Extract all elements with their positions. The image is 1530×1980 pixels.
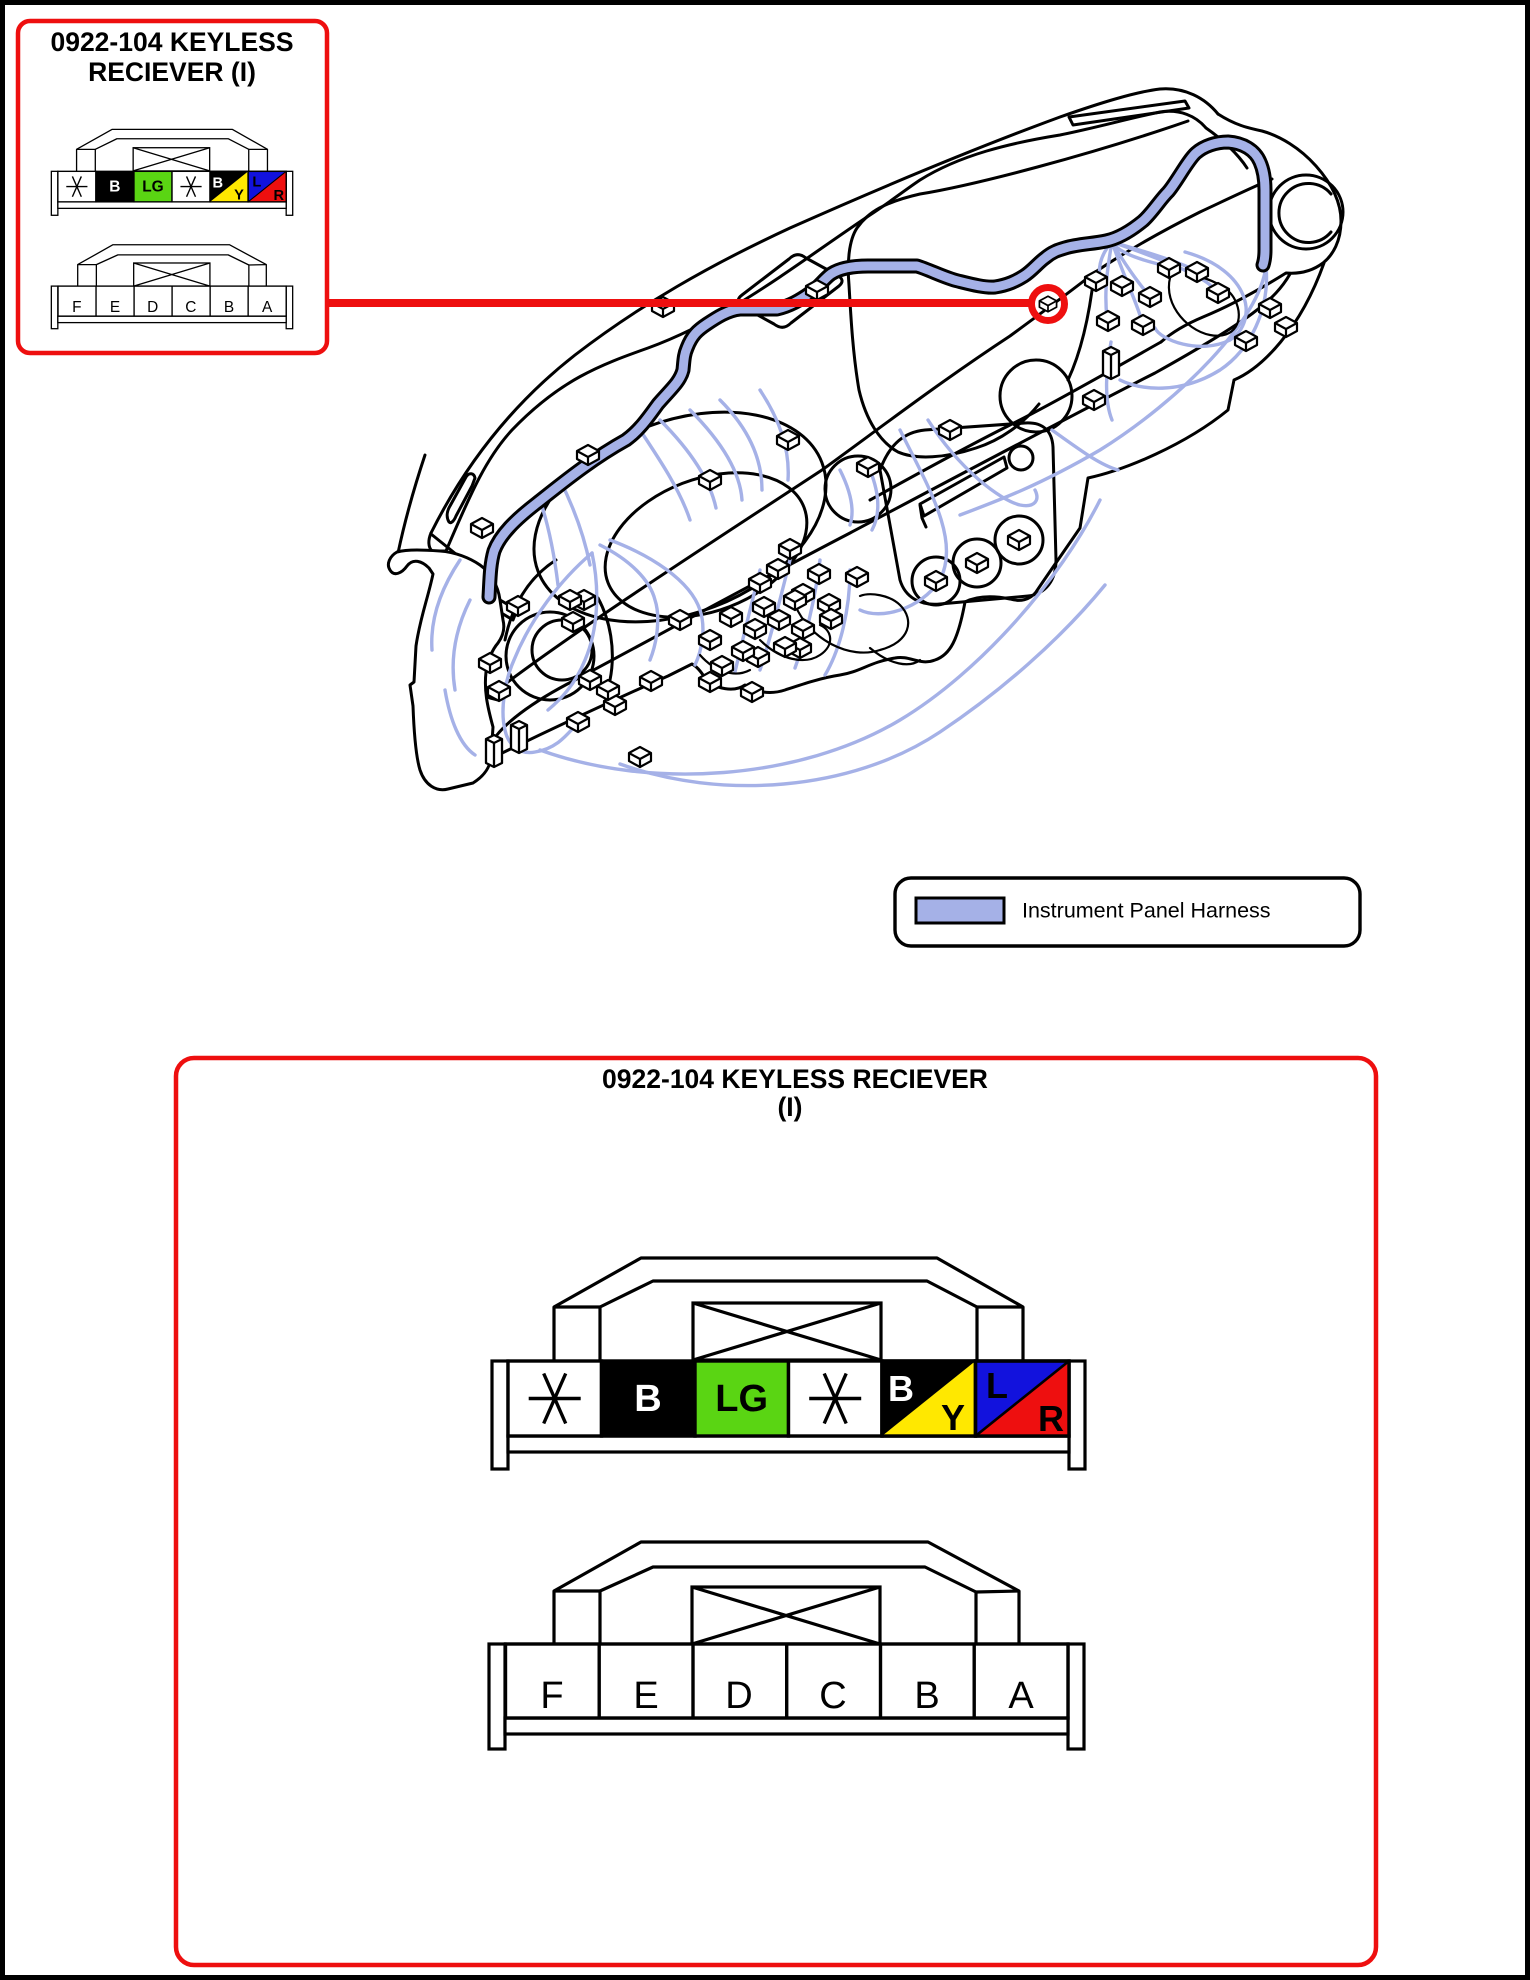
svg-text:(I): (I) xyxy=(777,1092,802,1122)
svg-text:Instrument Panel Harness: Instrument Panel Harness xyxy=(1022,899,1271,923)
svg-text:RECIEVER (I): RECIEVER (I) xyxy=(88,57,256,87)
svg-text:0922-104 KEYLESS: 0922-104 KEYLESS xyxy=(50,27,293,57)
svg-text:0922-104 KEYLESS RECIEVER: 0922-104 KEYLESS RECIEVER xyxy=(602,1064,988,1094)
